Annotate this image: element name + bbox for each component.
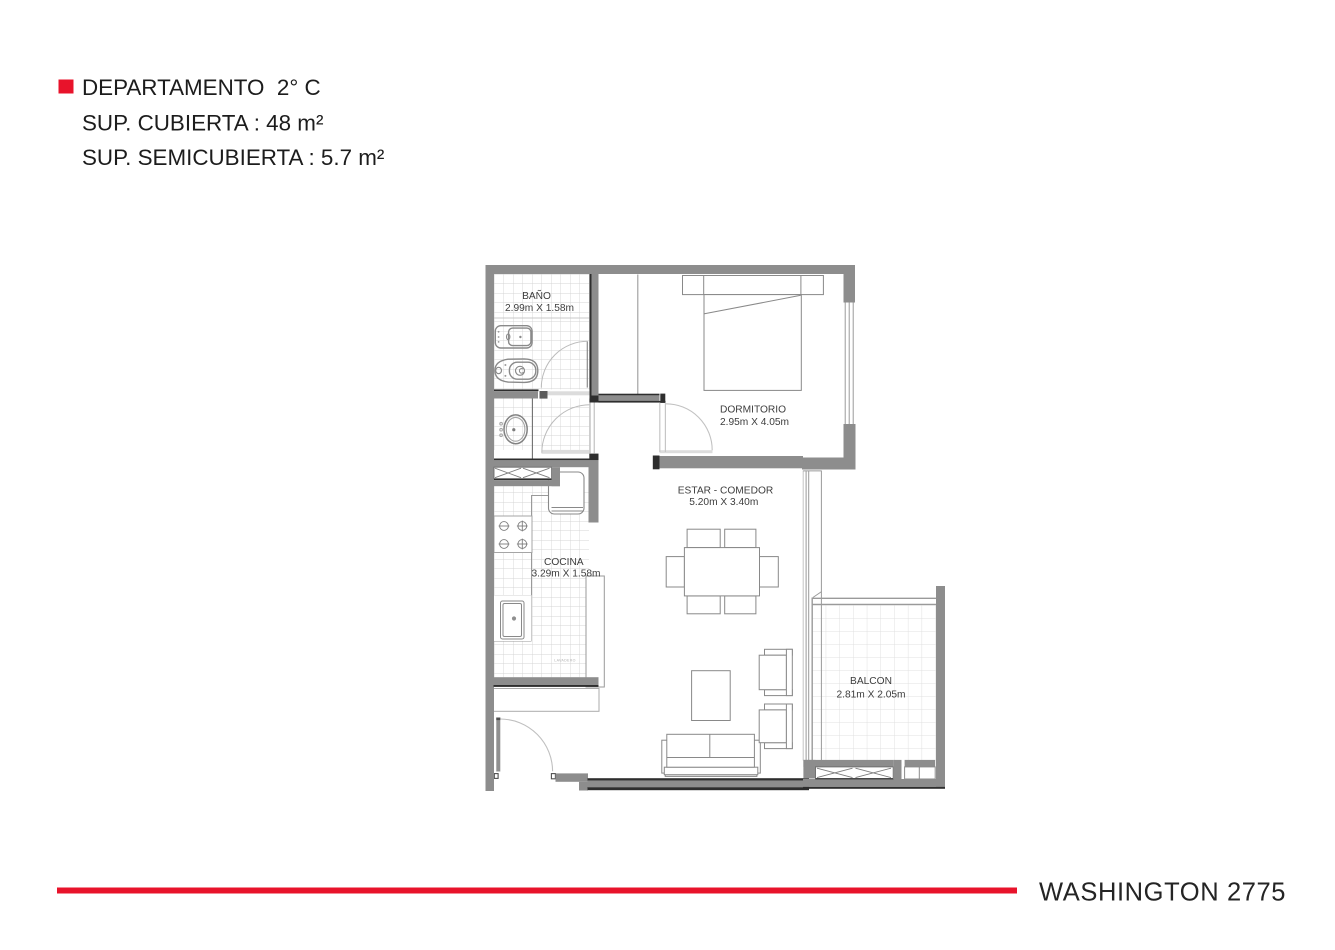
svg-text:2.81m X 2.05m: 2.81m X 2.05m (836, 690, 905, 701)
svg-text:2.99m X 1.58m: 2.99m X 1.58m (505, 303, 574, 314)
svg-text:DEPARTAMENTO 2° C: DEPARTAMENTO 2° C (82, 75, 321, 100)
svg-text:LAVADERO: LAVADERO (554, 659, 575, 663)
svg-text:2.95m X 4.05m: 2.95m X 4.05m (720, 417, 789, 428)
svg-text:SUP. SEMICUBIERTA : 5.7 m²: SUP. SEMICUBIERTA : 5.7 m² (82, 145, 385, 170)
svg-text:DORMITORIO: DORMITORIO (720, 405, 786, 416)
svg-text:BAÑO: BAÑO (522, 289, 551, 302)
svg-text:WASHINGTON 2775: WASHINGTON 2775 (1039, 879, 1286, 907)
svg-text:5.20m X 3.40m: 5.20m X 3.40m (689, 497, 758, 508)
svg-text:COCINA: COCINA (544, 557, 584, 568)
svg-text:ESTAR - COMEDOR: ESTAR - COMEDOR (678, 485, 773, 496)
svg-text:3.29m X 1.58m: 3.29m X 1.58m (531, 569, 600, 580)
svg-text:BALCON: BALCON (850, 676, 892, 687)
svg-text:SUP. CUBIERTA : 48 m²: SUP. CUBIERTA : 48 m² (82, 111, 324, 136)
